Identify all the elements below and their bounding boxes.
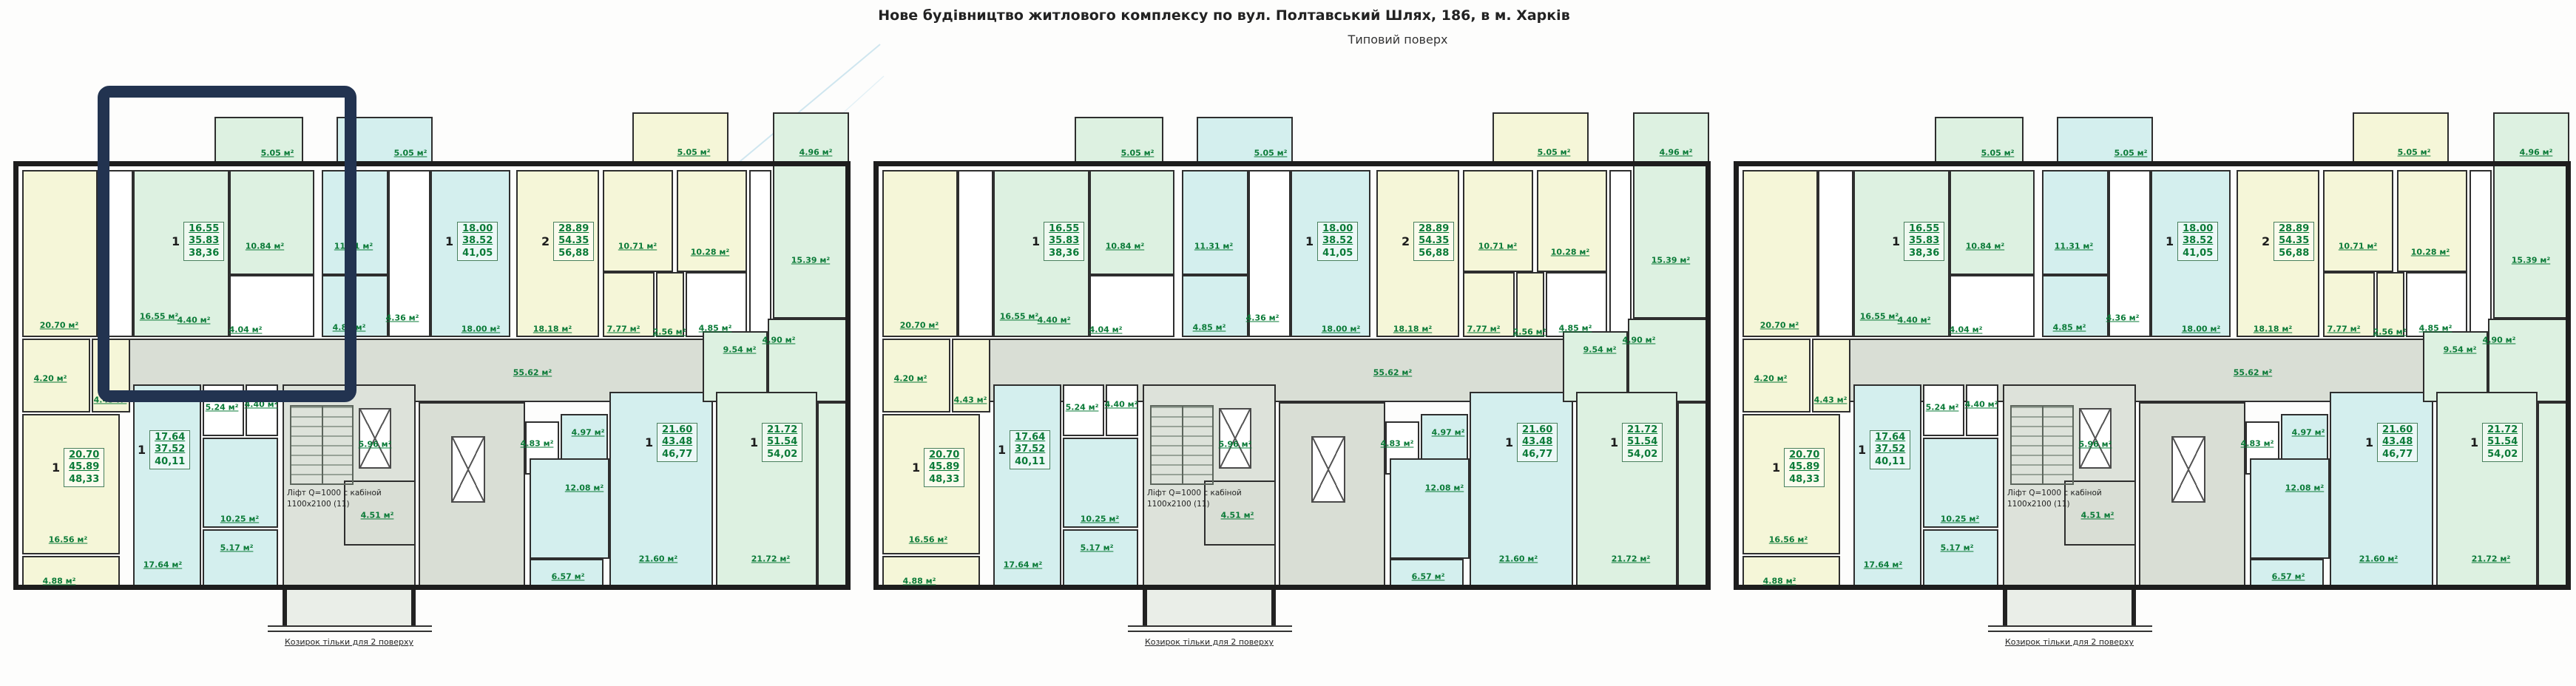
room — [1966, 384, 1998, 436]
apartment-card: 228.8954.3556,88 — [1402, 222, 1454, 261]
room — [768, 319, 849, 402]
room — [1089, 170, 1174, 275]
entrance-vestibule — [1143, 588, 1276, 625]
apartment-areas: 20.7045.8948,33 — [924, 448, 964, 487]
area-label: 4.85 м² — [2419, 324, 2452, 333]
apartment-card: 121.6043.4846,77 — [645, 423, 697, 462]
room — [1390, 458, 1470, 559]
area-label: 10.84 м² — [1106, 242, 1144, 251]
apartment-rooms-count: 1 — [445, 234, 453, 248]
apartment-areas: 21.6043.4846,77 — [657, 423, 697, 462]
area-label: 4.97 м² — [2292, 428, 2325, 438]
area-label: 18.18 м² — [1393, 325, 1432, 334]
apartment-rooms-count: 1 — [1505, 435, 1513, 449]
apartment-areas: 21.7251.5454,02 — [762, 423, 802, 462]
apartment-card: 116.5535.8338,36 — [1032, 222, 1084, 261]
area-label: 5.17 м² — [1941, 543, 1974, 553]
service-shaft — [1311, 436, 1345, 503]
room — [2250, 458, 2330, 559]
apartment-areas: 21.7251.5454,02 — [2482, 423, 2523, 462]
area-label: 10.28 м² — [1551, 248, 1589, 257]
apartment-areas: 18.0038.5241,05 — [2177, 222, 2218, 261]
room — [603, 170, 673, 272]
area-label: 4.90 м² — [2483, 336, 2516, 345]
room — [1609, 170, 1632, 337]
area-label: 4.90 м² — [1623, 336, 1656, 345]
area-label: 4.85 м² — [2053, 323, 2086, 333]
room — [1106, 384, 1138, 436]
area-label: 10.71 м² — [2339, 242, 2377, 251]
apartment-areas: 17.6437.5240,11 — [1870, 430, 1910, 469]
apartment-card: 116.5535.8338,36 — [1892, 222, 1944, 261]
area-label: 55.62 м² — [1373, 368, 1412, 378]
area-label: 5.05 м² — [2114, 149, 2148, 158]
apartment-areas: 17.6437.5240,11 — [1010, 430, 1050, 469]
area-label: 15.39 м² — [1652, 256, 1690, 265]
apartment-rooms-count: 2 — [2262, 234, 2270, 248]
area-label: 5.24 м² — [206, 403, 239, 412]
area-label: 55.62 м² — [513, 368, 552, 378]
area-label: 12.08 м² — [2285, 483, 2324, 493]
area-label: 4.36 м² — [386, 313, 419, 323]
room — [1923, 529, 1998, 588]
entrance-vestibule — [283, 588, 416, 625]
room — [817, 402, 849, 588]
room — [1633, 163, 1709, 319]
area-label: 10.25 м² — [1941, 514, 1979, 524]
room — [958, 170, 993, 337]
area-label: 5.05 м² — [2398, 148, 2431, 157]
service-shaft — [2171, 436, 2205, 503]
apartment-rooms-count: 1 — [2365, 435, 2373, 449]
service-shaft — [451, 436, 485, 503]
area-label: 4.96 м² — [2520, 148, 2553, 157]
area-label: 18.18 м² — [2254, 325, 2292, 334]
area-label: 5.05 м² — [677, 148, 711, 157]
apartment-rooms-count: 1 — [998, 443, 1006, 457]
area-label: 5.05 м² — [1538, 148, 1571, 157]
room — [1677, 402, 1709, 588]
section-3: Ліфт Q=1000 с кабіной 1100х2100 (11)Кози… — [1728, 0, 2576, 686]
area-label: 11.31 м² — [1194, 242, 1233, 251]
entrance-canopy — [1988, 625, 2152, 632]
area-label: 2.56 м² — [1513, 327, 1546, 337]
apartment-areas: 21.7251.5454,02 — [1622, 423, 1663, 462]
room — [882, 170, 958, 337]
apartment-areas: 21.6043.4846,77 — [2377, 423, 2418, 462]
apartment-card: 118.0038.5241,05 — [1305, 222, 1358, 261]
area-label: 18.00 м² — [462, 325, 500, 334]
room — [2538, 402, 2569, 588]
staircase — [1150, 405, 1214, 485]
area-label: 7.77 м² — [2327, 325, 2361, 334]
room — [993, 384, 1061, 588]
area-label: 55.62 м² — [2234, 368, 2272, 378]
room — [2323, 170, 2393, 272]
canopy-caption: Козирок тільки для 2 поверху — [1145, 637, 1274, 647]
area-label: 21.72 м² — [751, 554, 790, 564]
apartment-card: 121.7251.5454,02 — [750, 423, 802, 462]
area-label: 4.97 м² — [572, 428, 605, 438]
entrance-vestibule — [2003, 588, 2136, 625]
area-label: 5.24 м² — [1066, 403, 1099, 412]
area-label: 6.57 м² — [1412, 572, 1445, 582]
area-label: 2.56 м² — [653, 327, 686, 337]
area-label: 17.64 м² — [1864, 560, 1902, 570]
area-label: 12.08 м² — [565, 483, 604, 493]
room — [2042, 170, 2109, 275]
apartment-rooms-count: 2 — [1402, 234, 1410, 248]
area-label: 9.54 м² — [2444, 345, 2477, 355]
apartment-rooms-count: 1 — [52, 461, 60, 475]
elevator-shaft — [2079, 408, 2112, 469]
area-label: 4.43 м² — [1814, 395, 1848, 405]
area-label: 21.72 м² — [2472, 554, 2510, 564]
area-label: 16.56 м² — [49, 535, 87, 545]
area-label: 5.96 м² — [359, 440, 392, 449]
room — [530, 458, 609, 559]
apartment-areas: 28.8954.3556,88 — [553, 222, 594, 261]
highlighted-apartment-marker[interactable] — [98, 86, 356, 402]
area-label: 5.05 м² — [1254, 149, 1288, 158]
area-label: 4.36 м² — [2106, 313, 2140, 323]
apartment-card: 118.0038.5241,05 — [445, 222, 498, 261]
room — [388, 170, 430, 337]
area-label: 4.20 м² — [34, 374, 67, 384]
area-label: 4.88 м² — [903, 577, 936, 586]
apartment-areas: 21.6043.4846,77 — [1517, 423, 1558, 462]
area-label: 4.88 м² — [1763, 577, 1796, 586]
apartment-card: 228.8954.3556,88 — [541, 222, 594, 261]
area-label: 18.00 м² — [2182, 325, 2220, 334]
apartment-card: 120.7045.8948,33 — [1772, 448, 1825, 487]
area-label: 6.57 м² — [552, 572, 585, 582]
area-label: 6.57 м² — [2272, 572, 2305, 582]
area-label: 5.05 м² — [394, 149, 427, 158]
area-label: 5.96 м² — [1219, 440, 1252, 449]
area-label: 4.04 м² — [1950, 325, 1983, 335]
area-label: 4.40 м² — [1898, 316, 1931, 325]
area-label: 15.39 м² — [2512, 256, 2550, 265]
area-label: 17.64 м² — [143, 560, 182, 570]
area-label: 4.88 м² — [43, 577, 76, 586]
apartment-areas: 16.5535.8338,36 — [1904, 222, 1944, 261]
area-label: 12.08 м² — [1425, 483, 1464, 493]
area-label: 5.05 м² — [1981, 149, 2015, 158]
entrance-canopy — [268, 625, 432, 632]
apartment-card: 117.6437.5240,11 — [998, 430, 1050, 469]
apartment-rooms-count: 1 — [912, 461, 920, 475]
area-label: 4.83 м² — [2241, 439, 2274, 449]
room — [1853, 384, 1921, 588]
apartment-areas: 18.0038.5241,05 — [457, 222, 498, 261]
apartment-rooms-count: 1 — [1772, 461, 1780, 475]
apartment-card: 121.7251.5454,02 — [2470, 423, 2523, 462]
area-label: 16.55 м² — [1000, 312, 1038, 322]
area-label: 4.90 м² — [763, 336, 796, 345]
area-label: 10.25 м² — [220, 514, 259, 524]
area-label: 18.00 м² — [1322, 325, 1360, 334]
area-label: 5.17 м² — [220, 543, 254, 553]
area-label: 21.60 м² — [2359, 554, 2398, 564]
room — [2493, 163, 2569, 319]
area-label: 4.51 м² — [1221, 511, 1254, 520]
area-label: 4.20 м² — [1754, 374, 1788, 384]
area-label: 21.72 м² — [1612, 554, 1650, 564]
apartment-areas: 20.7045.8948,33 — [1784, 448, 1825, 487]
area-label: 4.20 м² — [894, 374, 927, 384]
area-label: 4.40 м² — [1105, 400, 1138, 410]
room — [1182, 170, 1248, 275]
area-label: 10.28 м² — [2411, 248, 2450, 257]
apartment-rooms-count: 1 — [1305, 234, 1314, 248]
area-label: 7.77 м² — [607, 325, 640, 334]
canopy-caption: Козирок тільки для 2 поверху — [2005, 637, 2134, 647]
room — [2109, 170, 2151, 337]
elevator-note: Ліфт Q=1000 с кабіной 1100х2100 (11) — [287, 488, 382, 509]
room — [1463, 170, 1533, 272]
apartment-areas: 20.7045.8948,33 — [64, 448, 104, 487]
area-label: 4.96 м² — [1660, 148, 1693, 157]
area-label: 21.60 м² — [639, 554, 677, 564]
area-label: 4.51 м² — [2081, 511, 2114, 520]
room — [133, 384, 201, 588]
staircase — [2010, 405, 2074, 485]
apartment-card: 228.8954.3556,88 — [2262, 222, 2314, 261]
elevator-note: Ліфт Q=1000 с кабіной 1100х2100 (11) — [2007, 488, 2102, 509]
section-2: Ліфт Q=1000 с кабіной 1100х2100 (11)Кози… — [868, 0, 1728, 686]
staircase — [290, 405, 354, 485]
area-label: 10.71 м² — [618, 242, 657, 251]
area-label: 5.05 м² — [1121, 149, 1155, 158]
room — [2488, 319, 2569, 402]
room — [1818, 170, 1853, 337]
apartment-rooms-count: 2 — [541, 234, 550, 248]
room — [22, 170, 98, 337]
apartment-areas: 28.8954.3556,88 — [2274, 222, 2314, 261]
area-label: 9.54 м² — [723, 345, 757, 355]
canopy-caption: Козирок тільки для 2 поверху — [285, 637, 413, 647]
area-label: 20.70 м² — [1760, 321, 1799, 330]
area-label: 4.85 м² — [1559, 324, 1592, 333]
area-label: 20.70 м² — [40, 321, 78, 330]
apartment-rooms-count: 1 — [2166, 234, 2174, 248]
area-label: 16.56 м² — [1769, 535, 1808, 545]
area-label: 4.51 м² — [361, 511, 394, 520]
apartment-card: 117.6437.5240,11 — [138, 430, 190, 469]
apartment-card: 121.7251.5454,02 — [1610, 423, 1663, 462]
apartment-card: 118.0038.5241,05 — [2166, 222, 2218, 261]
area-label: 5.96 м² — [2079, 440, 2112, 449]
area-label: 2.56 м² — [2373, 327, 2407, 337]
area-label: 10.71 м² — [1478, 242, 1517, 251]
room — [1742, 170, 1818, 337]
area-label: 4.83 м² — [1381, 439, 1414, 449]
room — [749, 170, 771, 337]
apartment-rooms-count: 1 — [2470, 435, 2478, 449]
apartment-areas: 18.0038.5241,05 — [1317, 222, 1358, 261]
area-label: 10.84 м² — [1966, 242, 2004, 251]
room — [203, 529, 278, 588]
entrance-canopy — [1128, 625, 1292, 632]
area-label: 4.43 м² — [954, 395, 987, 405]
apartment-card: 121.6043.4846,77 — [2365, 423, 2418, 462]
area-label: 18.18 м² — [533, 325, 572, 334]
apartment-rooms-count: 1 — [1610, 435, 1618, 449]
elevator-note: Ліфт Q=1000 с кабіной 1100х2100 (11) — [1147, 488, 1242, 509]
area-label: 4.96 м² — [799, 148, 833, 157]
area-label: 4.85 м² — [1193, 323, 1226, 333]
area-label: 7.77 м² — [1467, 325, 1501, 334]
apartment-card: 121.6043.4846,77 — [1505, 423, 1558, 462]
elevator-shaft — [1219, 408, 1251, 469]
area-label: 4.04 м² — [1089, 325, 1123, 335]
area-label: 9.54 м² — [1583, 345, 1617, 355]
apartment-areas: 28.8954.3556,88 — [1413, 222, 1454, 261]
room — [1628, 319, 1709, 402]
area-label: 17.64 м² — [1004, 560, 1042, 570]
apartment-card: 120.7045.8948,33 — [52, 448, 104, 487]
area-label: 15.39 м² — [791, 256, 830, 265]
area-label: 4.40 м² — [1038, 316, 1071, 325]
area-label: 10.25 м² — [1081, 514, 1119, 524]
area-label: 16.55 м² — [1860, 312, 1899, 322]
area-label: 20.70 м² — [900, 321, 939, 330]
area-label: 5.24 м² — [1926, 403, 1959, 412]
apartment-rooms-count: 1 — [750, 435, 758, 449]
apartment-areas: 16.5535.8338,36 — [1044, 222, 1084, 261]
apartment-areas: 17.6437.5240,11 — [149, 430, 190, 469]
area-label: 4.85 м² — [699, 324, 732, 333]
area-label: 4.83 м² — [521, 439, 554, 449]
area-label: 21.60 м² — [1499, 554, 1538, 564]
apartment-rooms-count: 1 — [1032, 234, 1040, 248]
floor-plan-page: Нове будівництво житлового комплексу по … — [0, 0, 2576, 686]
apartment-rooms-count: 1 — [1858, 443, 1866, 457]
apartment-rooms-count: 1 — [138, 443, 146, 457]
apartment-rooms-count: 1 — [1892, 234, 1900, 248]
area-label: 4.97 м² — [1432, 428, 1465, 438]
area-label: 5.17 м² — [1081, 543, 1114, 553]
elevator-shaft — [359, 408, 391, 469]
room — [773, 163, 849, 319]
area-label: 10.28 м² — [691, 248, 729, 257]
area-label: 11.31 м² — [2055, 242, 2093, 251]
area-label: 16.56 м² — [909, 535, 947, 545]
room — [1248, 170, 1291, 337]
apartment-rooms-count: 1 — [645, 435, 653, 449]
room — [1063, 529, 1138, 588]
room — [2469, 170, 2492, 337]
area-label: 4.36 м² — [1246, 313, 1279, 323]
apartment-card: 117.6437.5240,11 — [1858, 430, 1910, 469]
area-label: 4.40 м² — [1965, 400, 1998, 410]
apartment-card: 120.7045.8948,33 — [912, 448, 964, 487]
room — [1950, 170, 2035, 275]
